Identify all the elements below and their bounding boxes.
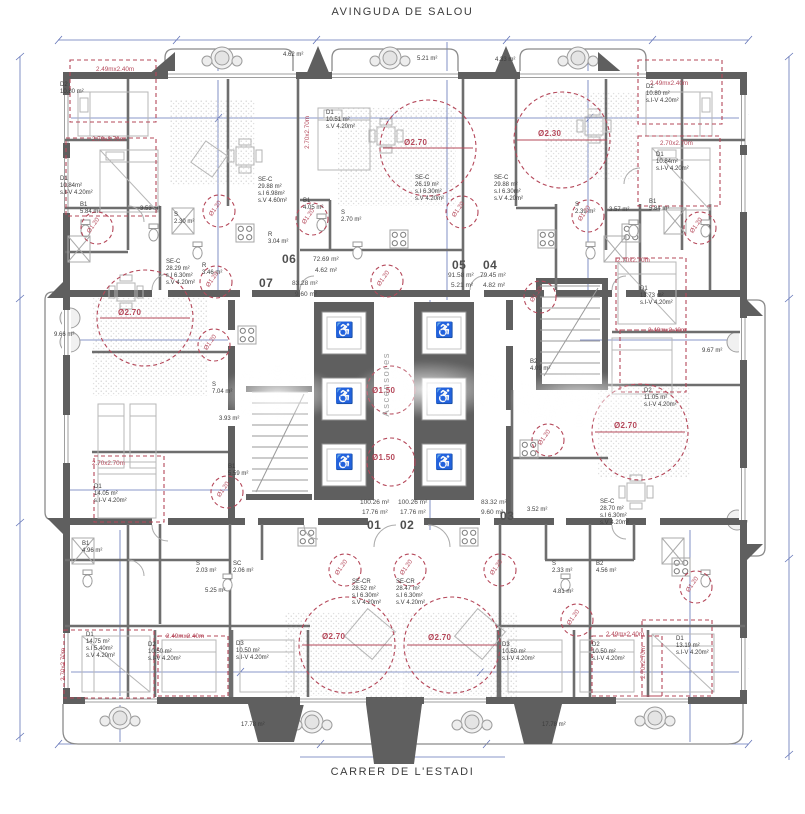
elevator-cars	[322, 312, 466, 486]
street-label-bottom: CARRER DE L'ESTADI	[0, 766, 805, 778]
floor-plan-canvas: AVINGUDA DE SALOU	[0, 0, 805, 814]
plan-drawing	[0, 0, 805, 814]
street-label-top: AVINGUDA DE SALOU	[0, 6, 805, 18]
hatched-floor-areas	[92, 92, 690, 702]
